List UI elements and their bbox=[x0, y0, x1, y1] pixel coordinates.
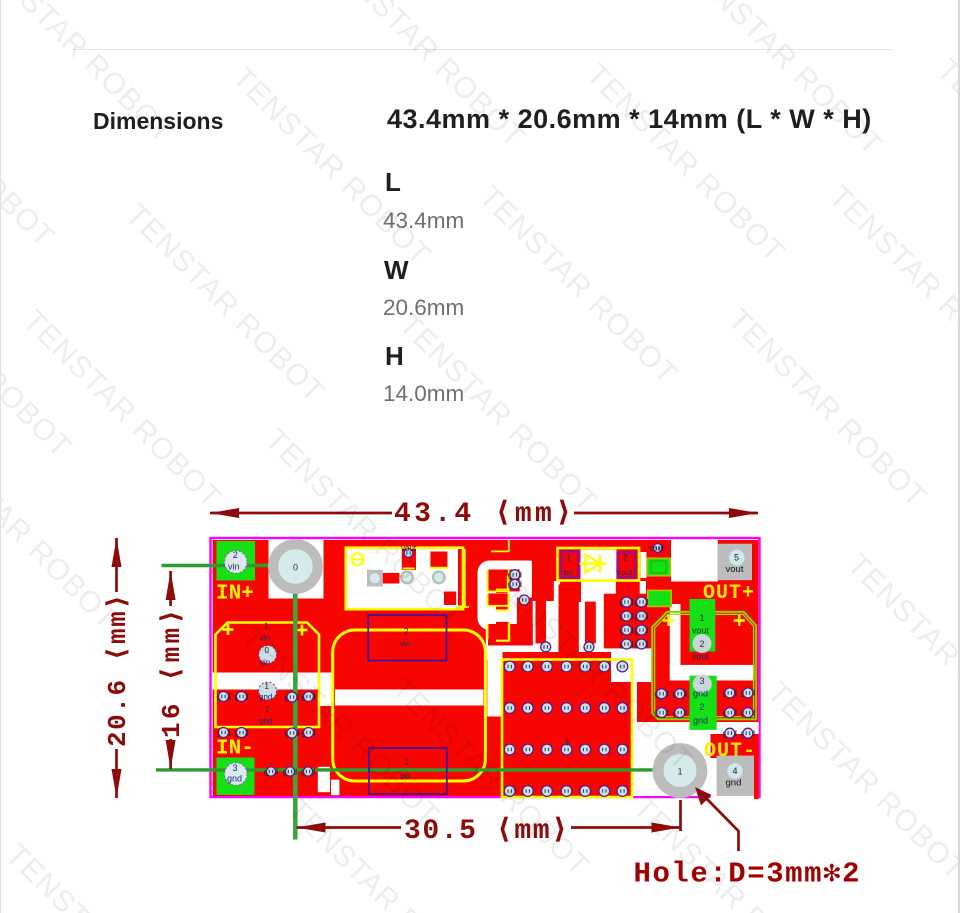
svg-text:1: 1 bbox=[405, 758, 410, 767]
svg-text:vout: vout bbox=[692, 652, 710, 662]
svg-text:OUT-: OUT- bbox=[704, 740, 755, 763]
svg-text:Hole:D=3mm✻2: Hole:D=3mm✻2 bbox=[634, 858, 860, 891]
svg-text:2: 2 bbox=[233, 550, 238, 560]
svg-text:2: 2 bbox=[265, 705, 270, 714]
svg-text:IN-: IN- bbox=[216, 738, 254, 761]
svg-text:gnd: gnd bbox=[259, 693, 272, 702]
svg-text:vout: vout bbox=[726, 564, 744, 575]
svg-text:IN+: IN+ bbox=[216, 583, 254, 606]
svg-text:gnd: gnd bbox=[227, 774, 242, 784]
svg-text:vout: vout bbox=[649, 544, 665, 553]
svg-text:3: 3 bbox=[700, 676, 705, 686]
svg-text:1: 1 bbox=[567, 553, 572, 563]
svg-text:2: 2 bbox=[404, 627, 409, 636]
svg-text:OUT+: OUT+ bbox=[703, 582, 754, 605]
svg-text:3: 3 bbox=[233, 763, 238, 773]
svg-text:gnd: gnd bbox=[726, 778, 742, 789]
svg-text:43.4 ⟨mm⟩: 43.4 ⟨mm⟩ bbox=[394, 499, 572, 530]
svg-text:16 ⟨mm⟩: 16 ⟨mm⟩ bbox=[157, 609, 187, 738]
svg-text:gnd: gnd bbox=[693, 716, 708, 726]
svg-text:3: 3 bbox=[565, 739, 570, 748]
svg-text:2: 2 bbox=[700, 639, 705, 649]
svg-text:4: 4 bbox=[733, 766, 738, 776]
svg-text:gnd: gnd bbox=[259, 717, 272, 726]
svg-text:2: 2 bbox=[700, 702, 705, 712]
svg-text:vout: vout bbox=[616, 567, 633, 577]
svg-text:5: 5 bbox=[734, 553, 739, 563]
svg-text:vout: vout bbox=[692, 626, 710, 636]
svg-text:1: 1 bbox=[265, 682, 270, 691]
svg-text:2: 2 bbox=[623, 553, 628, 563]
svg-text:po: po bbox=[564, 567, 574, 577]
svg-text:vin: vin bbox=[400, 640, 410, 649]
svg-text:gnd: gnd bbox=[693, 689, 708, 699]
svg-text:vin: vin bbox=[228, 562, 240, 572]
svg-text:0: 0 bbox=[293, 563, 298, 573]
svg-text:1: 1 bbox=[700, 613, 705, 623]
